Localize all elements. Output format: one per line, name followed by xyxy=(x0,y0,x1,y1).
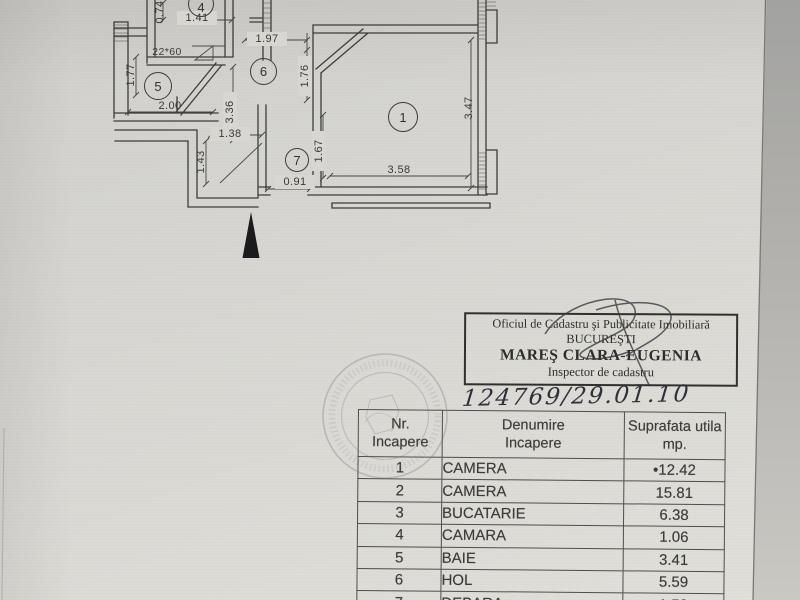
cell-area: 15.81 xyxy=(624,481,725,504)
office-name: Oficiul de Cadastru şi Publicitate Imobi… xyxy=(466,316,736,332)
cell-area: 5.59 xyxy=(623,571,724,594)
header-suprafata-line2: mp. xyxy=(625,435,725,454)
cell-nr: 6 xyxy=(357,568,441,591)
room-circle-1: 1 xyxy=(388,102,418,132)
room-number-4: 4 xyxy=(197,0,204,15)
header-denumire-line2: Incapere xyxy=(443,434,624,454)
inspector-title: Inspector de cadastru xyxy=(466,364,736,380)
header-nr-line1: Nr. xyxy=(359,415,442,434)
cell-area: •12.42 xyxy=(624,459,725,482)
north-arrow-icon xyxy=(243,212,260,258)
cell-area: 6.38 xyxy=(623,504,724,527)
cadastre-office-stamp-box: Oficiul de Cadastru şi Publicitate Imobi… xyxy=(464,312,738,386)
room-number-1: 1 xyxy=(399,110,406,125)
cell-name: CAMERA xyxy=(442,480,624,504)
table-header-row: Nr. Incapere Denumire Incapere Suprafata… xyxy=(358,410,725,460)
cell-area: 1.52 xyxy=(623,593,724,600)
table-row: 1 CAMERA •12.42 xyxy=(358,457,725,483)
header-nr-incapere: Nr. Incapere xyxy=(358,410,442,458)
room-circle-7: 7 xyxy=(285,148,309,172)
office-city: BUCUREŞTI xyxy=(466,331,736,346)
cell-name: HOL xyxy=(441,569,623,593)
scanned-document: 0.74 1.41 1.97 1.76 3.47 3.58 1.77 2.00 … xyxy=(0,0,800,600)
room-circle-6: 6 xyxy=(250,58,277,85)
cell-nr: 2 xyxy=(358,479,442,502)
header-denumire: Denumire Incapere xyxy=(442,410,624,459)
cell-area: 3.41 xyxy=(623,548,724,571)
header-suprafata-line1: Suprafata utila xyxy=(625,417,725,436)
area-table: Nr. Incapere Denumire Incapere Suprafata… xyxy=(356,409,726,600)
cell-nr: 4 xyxy=(357,524,441,547)
cell-name: BAIE xyxy=(441,547,623,571)
table-row: 3 BUCATARIE 6.38 xyxy=(357,501,724,527)
table-row: 6 HOL 5.59 xyxy=(357,568,724,594)
header-suprafata: Suprafata utila mp. xyxy=(624,412,725,460)
table-row: 4 CAMARA 1.06 xyxy=(357,524,724,550)
cell-area: 1.06 xyxy=(623,526,724,549)
cell-nr: 5 xyxy=(357,546,441,569)
table-row: 5 BAIE 3.41 xyxy=(357,546,724,572)
table-row: 2 CAMERA 15.81 xyxy=(358,479,725,505)
walls xyxy=(114,0,497,208)
cell-nr: 3 xyxy=(357,501,441,524)
inspector-name: MAREŞ CLARA-EUGENIA xyxy=(466,345,736,365)
room-number-7: 7 xyxy=(293,153,300,168)
cell-name: BUCATARIE xyxy=(441,502,623,526)
cell-nr: 7 xyxy=(357,591,441,600)
header-denumire-line1: Denumire xyxy=(443,416,624,436)
cell-name: CAMERA xyxy=(442,457,624,481)
room-number-5: 5 xyxy=(154,79,161,94)
room-number-6: 6 xyxy=(260,64,267,79)
room-circle-5: 5 xyxy=(144,72,172,100)
cell-name: CAMARA xyxy=(441,524,623,548)
cell-nr: 1 xyxy=(358,457,442,480)
cell-name: DEBARA xyxy=(441,592,623,600)
header-nr-line2: Incapere xyxy=(359,433,442,452)
